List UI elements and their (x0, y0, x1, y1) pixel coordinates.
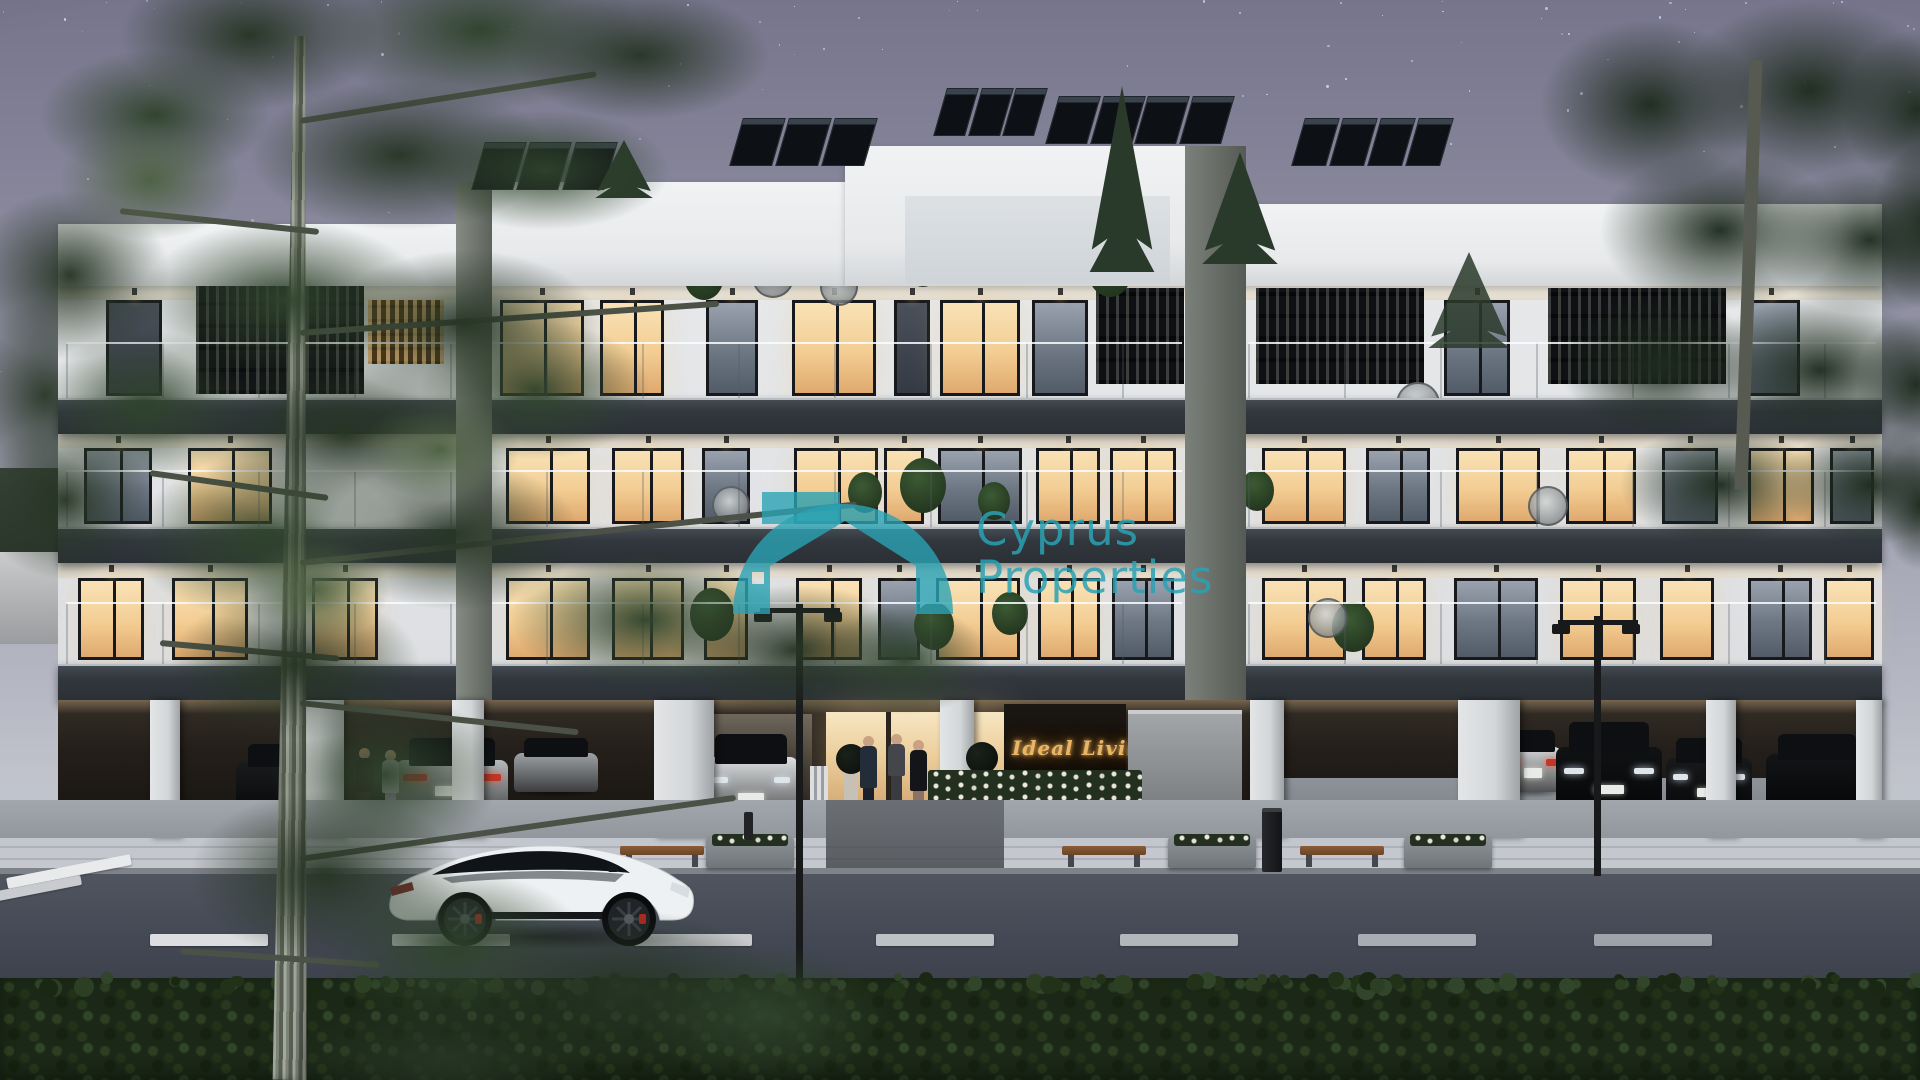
watermark-line2: Properties (976, 554, 1213, 602)
watermark-roof-block (762, 492, 840, 524)
watermark-line1: Cyprus (976, 506, 1213, 554)
scene-apartment-render: Ideal Living 11 (0, 0, 1920, 1080)
watermark-text: Cyprus Properties (976, 506, 1213, 602)
watermark-logo (0, 0, 1920, 1080)
